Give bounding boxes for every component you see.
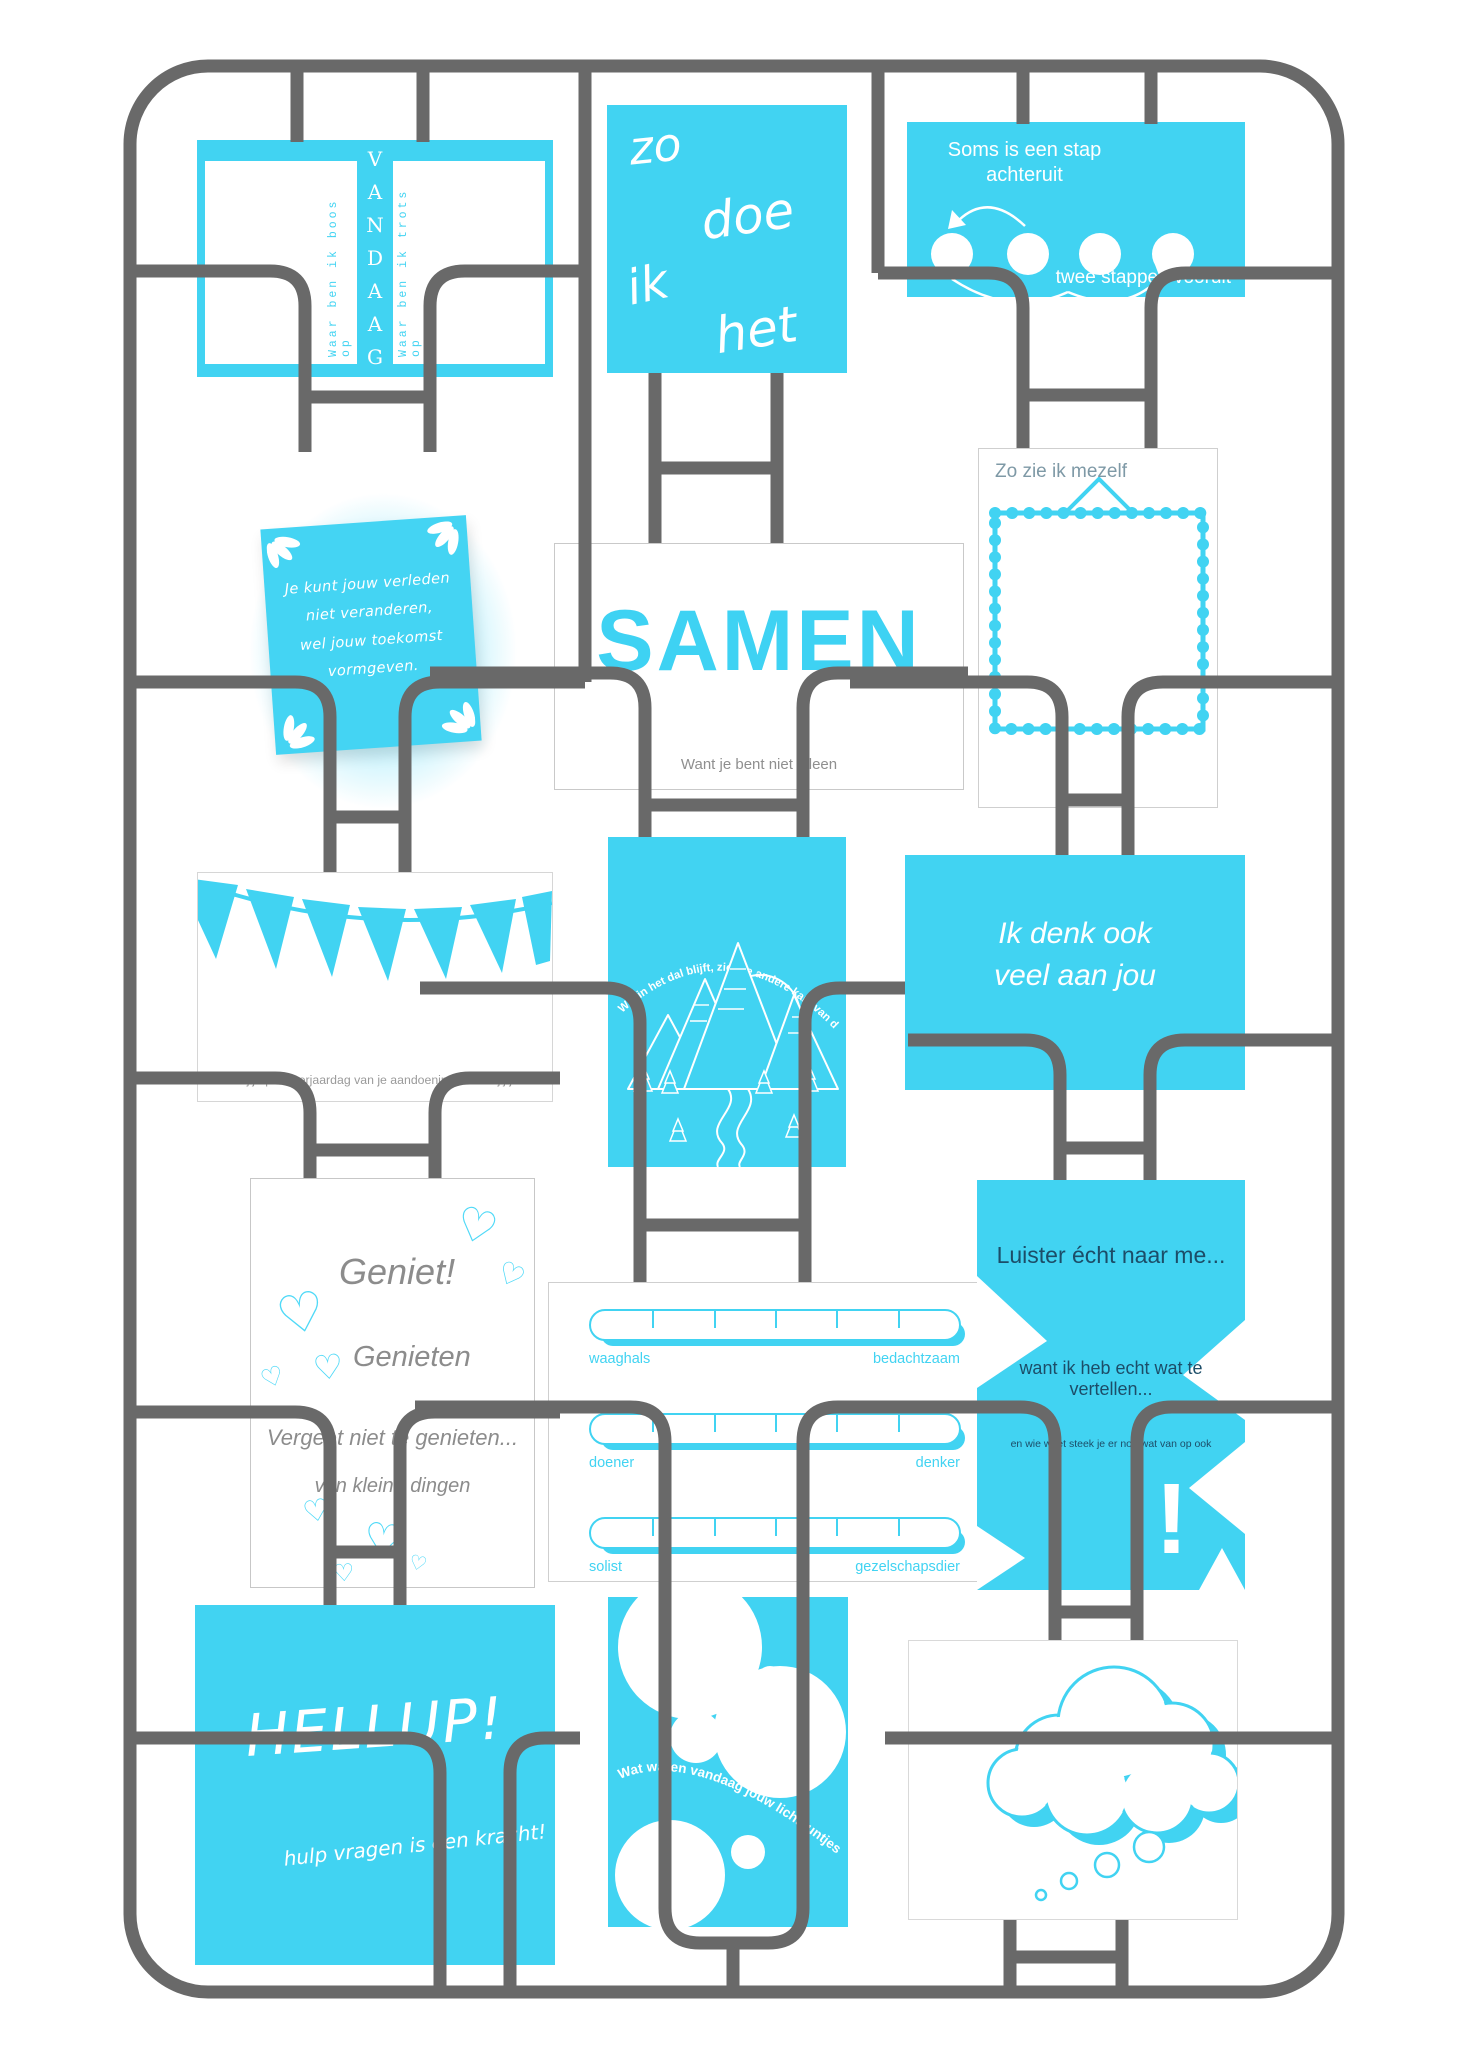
slider-tick [714,1519,716,1536]
bunting-caption: Wat doe jij op de verjaardag van je aand… [198,1073,552,1087]
heart-icon: ♡ [360,1516,405,1565]
slider-label-left: waaghals [589,1351,650,1367]
river-icon [717,1089,751,1167]
card-sliders: waaghals bedachtzaam doener denker solis… [548,1282,1003,1582]
frame-hanger-icon [1067,479,1131,511]
heart-icon: ♡ [272,1283,331,1346]
heart-icon: ♡ [450,1198,502,1254]
samen-title: SAMEN [555,592,963,691]
vandaag-right-label: Waar ben ik trots op [397,170,423,357]
bunting-garland-icon [198,873,552,1023]
slider-tick [836,1311,838,1328]
slider-label-left: solist [589,1559,622,1575]
cut-wedge [1189,1442,1245,1534]
zodoe-word: zo [626,116,684,175]
geniet-word: Genieten [353,1341,471,1374]
thought-cloud-icon [909,1641,1237,1919]
slider-tick [775,1519,777,1536]
arrowhead-back [948,210,966,229]
soms-text: Soms is een stap achteruit [917,138,1132,188]
soms-bottom-text: twee stappen vooruit [1056,267,1231,289]
vandaag-title: VANDAAG [357,161,393,364]
card-bunting: Wat doe jij op de verjaardag van je aand… [197,872,553,1102]
hellup-title: HELLUP! [195,1681,555,1774]
arrow-back-icon [959,207,1025,226]
card-hellup: HELLUP! hulp vragen is een kracht! [195,1605,555,1965]
postcard-sheet: Waar ben ik boos op VANDAAG Waar ben ik … [0,0,1468,2048]
denk-line2: veel aan jou [905,959,1245,993]
card-lichtpuntjes: Wat waren vandaag jouw lichtpuntjes? [608,1597,848,1927]
slider-tick [898,1415,900,1432]
card-sticky-note: Je kunt jouw verleden niet veranderen, w… [260,515,481,755]
picture-frame-icon [979,449,1217,807]
card-luister: Luister écht naar me... want ik heb echt… [977,1180,1245,1590]
slider-tick [714,1415,716,1432]
slider-label-right: bedachtzaam [873,1351,960,1367]
petal-icon [421,520,464,563]
slider-tick [836,1415,838,1432]
luister-line1: Luister écht naar me... [977,1242,1245,1269]
cloud-fill [990,1669,1237,1833]
slider-track [589,1309,961,1341]
card-geniet: Geniet! Genieten Vergeet niet te geniete… [250,1178,535,1588]
card-zo-doe-ik-het: zo doe ik het [607,105,847,373]
denk-line1: Ik denk ook [905,917,1245,951]
slider-label-left: doener [589,1455,634,1471]
luister-line3: en wie weet steek je er nog wat van op o… [977,1438,1245,1450]
heart-icon: ♡ [301,1495,333,1529]
slider-tick [652,1311,654,1328]
petal-icon [434,696,477,739]
card-stap-achteruit: Soms is een stap achteruit twee stappen … [907,122,1245,297]
slider-tick [775,1311,777,1328]
cut-wedge [977,1526,1025,1590]
vandaag-left-label: Waar ben ik boos op [327,170,353,357]
slider-label-right: denker [916,1455,960,1471]
zodoe-word: ik [622,253,674,316]
geniet-line1: Vergeet niet te genieten... [251,1425,534,1451]
heart-icon: ♡ [257,1362,288,1394]
slider-tick [652,1415,654,1432]
mezelf-title: Zo zie ik mezelf [995,461,1127,483]
slider-tick [652,1519,654,1536]
petal-icon [278,707,321,750]
slider-tick [898,1311,900,1328]
card-vandaag: Waar ben ik boos op VANDAAG Waar ben ik … [197,140,553,377]
zodoe-word: het [711,295,801,365]
heart-icon: ♡ [407,1551,429,1575]
slider-tick [898,1519,900,1536]
card-zo-zie-ik-mezelf: Zo zie ik mezelf [978,448,1218,808]
slider-tick [836,1519,838,1536]
zodoe-word: doe [697,181,797,251]
geniet-title: Geniet! [339,1251,455,1293]
slider-track [589,1517,961,1549]
slider-tick [714,1311,716,1328]
samen-subtitle: Want je bent niet alleen [555,756,963,773]
hellup-subtitle: hulp vragen is een kracht! [282,1819,547,1870]
heart-icon: ♡ [492,1257,529,1296]
pennant-icon [198,877,552,981]
cut-wedge [1199,1548,1245,1590]
heart-icon: ♡ [311,1349,345,1386]
slider-label-right: gezelschapsdier [855,1559,960,1575]
card-samen: SAMEN Want je bent niet alleen [554,543,964,790]
slider-tick [775,1415,777,1432]
geniet-line2: van kleine dingen [251,1475,534,1498]
sticky-note-text: Je kunt jouw verleden niet veranderen, w… [264,563,477,690]
exclamation-mark: ! [1155,1462,1188,1577]
mountain-icon [628,943,838,1089]
card-ik-denk-aan-jou: Ik denk ook veel aan jou [905,855,1245,1090]
luister-line2: want ik heb echt wat te vertellen... [977,1358,1245,1400]
heart-icon: ♡ [332,1560,355,1585]
slider-track [589,1413,961,1445]
card-mountain: Wie in het dal blijft, ziet de andere ka… [608,837,846,1167]
card-thought-cloud [908,1640,1238,1920]
petal-icon [266,531,309,574]
